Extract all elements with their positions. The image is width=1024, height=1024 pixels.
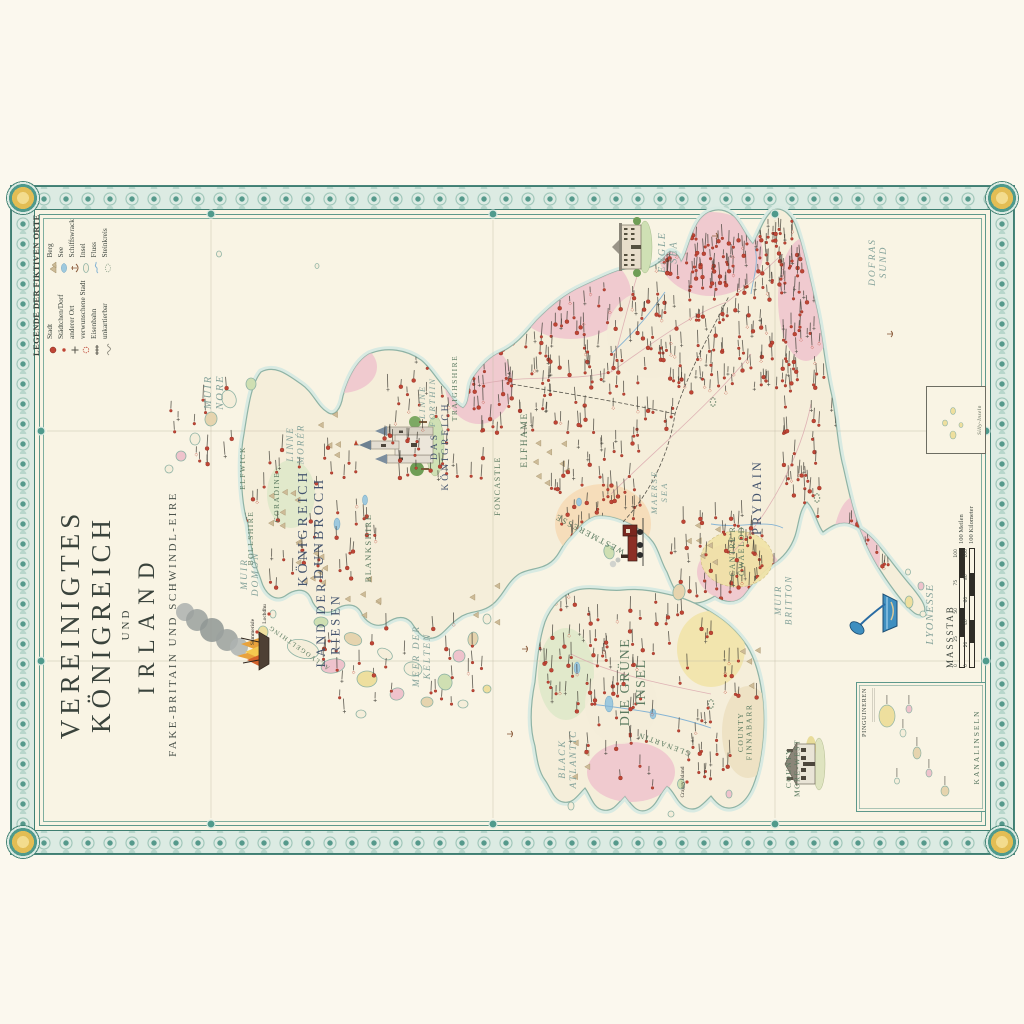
map-label: FONCASTLE bbox=[493, 456, 502, 516]
legend-column-right: BergSeeSchiffswrackInselFlussSteinkreis bbox=[44, 200, 110, 274]
legend-row: unkartierbar bbox=[99, 280, 110, 356]
other-place-icon bbox=[67, 343, 77, 356]
map-title-line2: UND bbox=[120, 422, 132, 826]
inset-island bbox=[926, 769, 932, 777]
map-label: DOFRASSUND bbox=[868, 238, 889, 287]
shipwreck-icon bbox=[67, 261, 77, 274]
channel-islands-inset: PINGUINEREN KANALINSELN bbox=[856, 682, 986, 812]
island bbox=[315, 264, 319, 269]
island bbox=[342, 630, 363, 647]
island bbox=[458, 700, 468, 708]
island bbox=[421, 697, 433, 707]
scale-tick: 25 bbox=[954, 636, 959, 642]
town-cluster bbox=[322, 612, 483, 713]
landmass bbox=[241, 209, 925, 638]
legend-label: verwunschene Stadt bbox=[78, 280, 87, 339]
inset-island bbox=[943, 420, 948, 426]
legend-row: Steinkreis bbox=[99, 200, 110, 274]
legend-column-left: StadtStädtchen/Dorfanderer Ortverwunsche… bbox=[44, 280, 110, 356]
inset-island bbox=[959, 423, 963, 428]
lake bbox=[605, 696, 613, 712]
frame-medallion-icon bbox=[37, 657, 45, 665]
unmappable-icon bbox=[100, 343, 110, 356]
scale-tick: 60 bbox=[964, 597, 969, 603]
frame-medallion-icon bbox=[207, 820, 215, 828]
map-label: ELFHAME bbox=[520, 412, 530, 467]
lake bbox=[577, 498, 582, 506]
island bbox=[467, 631, 479, 647]
sailing-boat-illustration bbox=[848, 594, 897, 637]
map-label: LAND DERRIESEN bbox=[314, 581, 342, 668]
legend-row: Stadt bbox=[44, 280, 55, 356]
island bbox=[246, 378, 256, 390]
map-label: ELFWICK bbox=[238, 446, 247, 490]
inset-island bbox=[941, 786, 949, 796]
scale-km-bar: 020406080100 bbox=[969, 548, 975, 668]
scale-miles-label: 100 Meilen bbox=[958, 514, 965, 544]
map-label: MEER DERKELTEN bbox=[412, 625, 433, 688]
map-label: CANTRE'RGWAELOD bbox=[728, 526, 746, 577]
legend-row: Eisenbahn bbox=[88, 280, 99, 356]
cursed-town-icon bbox=[78, 343, 88, 356]
legend-row: anderer Ort bbox=[66, 280, 77, 356]
legend-row: Städtchen/Dorf bbox=[55, 280, 66, 356]
shipwreck-icon bbox=[887, 331, 893, 337]
legend-label: Steinkreis bbox=[100, 228, 109, 257]
frame-medallion-icon bbox=[207, 210, 215, 218]
island bbox=[726, 790, 732, 798]
legend-label: anderer Ort bbox=[67, 306, 76, 339]
legend-label: Städtchen/Dorf bbox=[56, 294, 65, 339]
map-label: PRYDAIN bbox=[750, 459, 764, 535]
inset-island bbox=[900, 729, 906, 737]
map-label: TRAIGHSHIRE bbox=[450, 355, 459, 422]
city-dot-icon bbox=[45, 343, 55, 356]
legend-label: Berg bbox=[45, 243, 54, 257]
inset-island bbox=[951, 408, 956, 415]
stone-circle-icon bbox=[100, 261, 110, 274]
scale-tick: 100 bbox=[964, 549, 969, 558]
map-label: COUNTYFINNABARR bbox=[736, 704, 754, 761]
frame-medallion-icon bbox=[982, 657, 990, 665]
scale-tick: 40 bbox=[964, 619, 969, 625]
scale-tick: 50 bbox=[954, 608, 959, 614]
map-label: LINNEMORÉR bbox=[285, 424, 305, 466]
legend-label: unkartierbar bbox=[100, 303, 109, 339]
island bbox=[190, 433, 200, 445]
island bbox=[905, 596, 913, 608]
island bbox=[376, 646, 395, 663]
legend-row: Berg bbox=[44, 200, 55, 274]
silly-isles-inset: Silly-Inseln bbox=[926, 386, 986, 454]
silly-inset-caption: Silly-Inseln bbox=[977, 387, 983, 453]
map-label: MUIRBRITTON bbox=[773, 575, 793, 625]
map-label: Craggy Island bbox=[680, 766, 686, 797]
map-label: BOLLSHIRE bbox=[246, 511, 255, 566]
map-label: BLANKSHIRE bbox=[363, 514, 373, 583]
legend-row: Schiffswrack bbox=[66, 200, 77, 274]
island bbox=[918, 582, 924, 590]
scale-tick: 0 bbox=[964, 664, 969, 667]
legend-label: See bbox=[56, 247, 65, 258]
frame-medallion-icon bbox=[489, 820, 497, 828]
map-label: CORADINE bbox=[272, 472, 281, 523]
island bbox=[436, 672, 454, 691]
map-label: COUNTYMORE-WEST bbox=[784, 739, 802, 797]
scale-tick: 0 bbox=[954, 664, 959, 667]
scale-tick: 75 bbox=[954, 580, 959, 586]
island bbox=[668, 811, 674, 817]
legend-label: Fluss bbox=[89, 242, 98, 257]
railway-icon bbox=[89, 343, 99, 356]
frame-medallion-icon bbox=[771, 820, 779, 828]
legend-label: Stadt bbox=[45, 324, 54, 339]
shipwreck-icon bbox=[507, 731, 513, 737]
map-label: KÖNIGREICHDUNBROCH bbox=[294, 469, 327, 586]
scale-tick: 20 bbox=[964, 642, 969, 648]
channel-inset-caption: KANALINSELN bbox=[972, 683, 981, 811]
scale-tick: 80 bbox=[964, 574, 969, 580]
channel-islands-map bbox=[857, 683, 985, 811]
legend-row: verwunschene Stadt bbox=[77, 280, 88, 356]
island bbox=[483, 614, 491, 624]
scale-km-ticks: 020406080100 bbox=[964, 549, 969, 667]
lake-icon bbox=[56, 261, 66, 274]
inset-island bbox=[906, 705, 912, 713]
legend-row: Fluss bbox=[88, 200, 99, 274]
river-icon bbox=[89, 261, 99, 274]
frame-medallion-icon bbox=[37, 427, 45, 435]
shipwreck-icon bbox=[522, 646, 528, 652]
island bbox=[217, 251, 222, 257]
inset-island bbox=[950, 431, 956, 439]
inset-island bbox=[913, 747, 921, 759]
map-title-line1: VEREINIGTES KÖNIGREICH bbox=[55, 422, 117, 826]
legend-label: Eisenbahn bbox=[89, 309, 98, 339]
legend-title: LEGENDE DER FIKTIVEN ORTE bbox=[31, 200, 41, 356]
map-title-line3: IRLAND bbox=[134, 422, 160, 826]
frame-medallion-icon bbox=[771, 210, 779, 218]
island bbox=[568, 802, 574, 810]
map-sheet-wrap: MUIRNORELINNEMORÉRLINNEFORTHINMUIRDOMONM… bbox=[10, 185, 1015, 855]
village-dot-icon bbox=[56, 343, 66, 356]
scale-tick: 100 bbox=[954, 549, 959, 558]
page: { "title": { "line1": "VEREINIGTES KÖNIG… bbox=[0, 0, 1024, 1024]
island bbox=[388, 686, 405, 702]
scale-km-row: 020406080100 100 Kilometer bbox=[968, 498, 975, 668]
map-label: LYONESSE bbox=[925, 583, 936, 645]
island bbox=[356, 710, 366, 718]
frame-medallion-icon bbox=[489, 210, 497, 218]
scale-miles-ticks: 0255075100 bbox=[954, 549, 959, 667]
legend: LEGENDE DER FIKTIVEN ORTE StadtStädtchen… bbox=[31, 200, 110, 356]
map-sheet: MUIRNORELINNEMORÉRLINNEFORTHINMUIRDOMONM… bbox=[10, 185, 1015, 855]
mountain-icon bbox=[45, 261, 55, 274]
channel-inset-title: PINGUINEREN bbox=[861, 688, 875, 737]
legend-row: Insel bbox=[77, 200, 88, 274]
map-label: Summerisle bbox=[250, 618, 256, 645]
island-icon bbox=[78, 261, 88, 274]
scale-bar-block: MASSSTAB 0255075100 100 Meilen 020406080… bbox=[945, 498, 975, 668]
lake bbox=[363, 495, 368, 505]
scale-km-label: 100 Kilometer bbox=[968, 506, 975, 544]
legend-label: Insel bbox=[78, 243, 87, 257]
legend-row: See bbox=[55, 200, 66, 274]
island bbox=[451, 648, 467, 664]
map-label: MUIRNORE bbox=[203, 374, 226, 410]
map-label: Lochdhu bbox=[262, 604, 268, 624]
channel-inset-subtext bbox=[870, 688, 875, 722]
island bbox=[906, 569, 911, 575]
island bbox=[270, 610, 276, 618]
map-subtitle: FAKE-BRITAIN UND SCHWINDL-EIRE bbox=[167, 422, 179, 826]
inset-island bbox=[895, 778, 900, 784]
legend-label: Schiffswrack bbox=[67, 219, 76, 257]
map-title-block: VEREINIGTES KÖNIGREICH UND IRLAND FAKE-B… bbox=[55, 422, 179, 826]
island bbox=[483, 685, 491, 693]
inset-island bbox=[879, 705, 895, 727]
lake bbox=[334, 518, 340, 530]
